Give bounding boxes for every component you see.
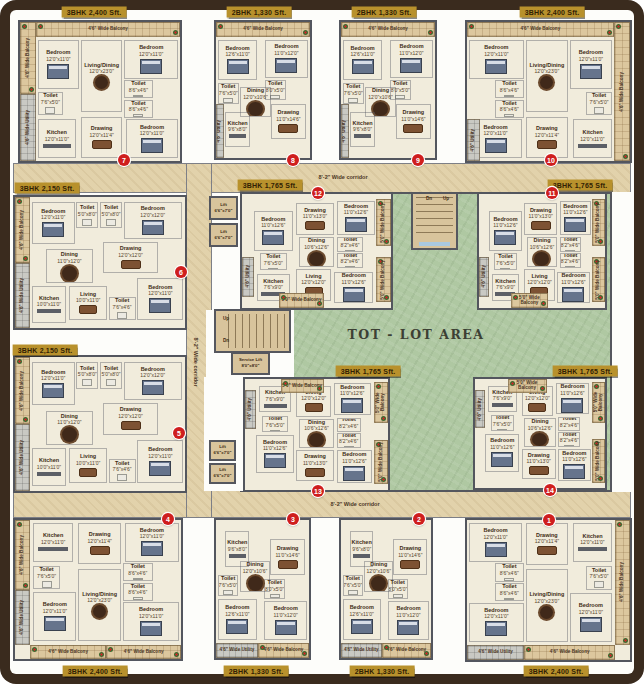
room-drawing: Drawing12'0"x11'4" [81, 117, 123, 159]
wc-furniture-icon [45, 107, 55, 114]
sofa-furniture-icon [305, 468, 325, 477]
strip-label: 5'0" Wide Balcony [282, 298, 322, 303]
counter-furniture-icon [264, 404, 287, 408]
balcony-strip: 4'6" Wide Balcony [258, 643, 309, 658]
room-dimensions: 12'0"x23'0" [87, 598, 112, 603]
lift: Lift6'6"x7'0" [209, 440, 236, 461]
room-dimensions: 11'0"x12'6" [560, 391, 584, 396]
room-dimensions: 12'0"x12'0" [527, 280, 552, 285]
wc-furniture-icon [344, 446, 354, 447]
room-bedroom: Bedroom11'0"x12'6" [558, 449, 591, 482]
bed-furniture-icon [580, 64, 602, 79]
unit-badge-13: 3BHK 1,765 Sft. [336, 366, 401, 377]
room-toilet: Toilet8'2"x4'6" [337, 253, 362, 268]
room-bedroom: Bedroom12'6"x11'0" [343, 40, 382, 81]
sofa-furniture-icon [305, 403, 323, 412]
strip-label: 4'6" Wide Utility [20, 600, 25, 635]
room-dimensions: 11'0"x12'6" [493, 223, 517, 228]
room-name: Toilet [498, 254, 512, 260]
room-dimensions: 11'0"x13'0" [529, 214, 553, 219]
room-name: Bedroom [342, 273, 366, 279]
room-dimensions: 7'6"x5'0" [264, 261, 283, 266]
room-kitchen: Kitchen9'6"x8'0" [350, 112, 374, 147]
counter-furniture-icon [229, 554, 246, 558]
balcony-strip: 4'6" Wide Balcony [15, 197, 30, 263]
balcony-strip: 5'0" Wide Balcony [508, 379, 547, 393]
room-dimensions: 11'0"x12'6" [562, 457, 586, 462]
room-dimensions: 7'6"x5'0" [493, 422, 512, 427]
room-drawing: Drawing11'0"x14'6" [271, 104, 307, 139]
lift-dims: 6'6"x7'0" [214, 236, 232, 241]
table-furniture-icon [93, 605, 106, 618]
room-dimensions: 12'0"x10'6" [243, 95, 268, 100]
utility-strip: 4'6" Utility [242, 257, 254, 297]
room-name: Toilet [80, 205, 94, 211]
bed-furniture-icon [42, 383, 64, 398]
room-name: Toilet [115, 298, 129, 304]
unit-number-2: 2 [413, 513, 425, 525]
room-dimensions: 7'6"x5'0" [41, 100, 60, 105]
room-toilet: Toilet8'2"x4'6" [558, 417, 580, 431]
table-furniture-icon [534, 252, 549, 266]
utility-strip: 4'6" Utility [467, 119, 480, 161]
wc-furniture-icon [504, 598, 514, 601]
room-toilet: Toilet8'2"x4'6" [337, 237, 362, 252]
stair-treads [416, 197, 453, 238]
room-dining: Dining11'0"x12'0" [46, 411, 94, 446]
bed-furniture-icon [485, 138, 507, 153]
room-dimensions: 8'2"x4'6" [560, 423, 579, 428]
room-dimensions: 12'0"x11'0" [148, 454, 172, 459]
room-dimensions: 11'0"x14'6" [401, 117, 425, 122]
central-stairs [411, 192, 458, 250]
unit-badge-6: 3BHK 2,150 Sft. [15, 183, 80, 194]
room-dimensions: 5'0"x8'0" [78, 212, 97, 217]
lift-label: Lift [220, 230, 227, 235]
room-dimensions: 12'0"x11'0" [580, 540, 604, 545]
utility-strip: 4'6" Utility [475, 390, 485, 428]
balcony-strip: 5'0" Wide Balcony [376, 257, 391, 303]
room-dimensions: 5'0"x8'0" [78, 372, 97, 377]
strip-label: 4'6" Utility [246, 265, 251, 287]
bed-furniture-icon [400, 58, 422, 73]
strip-label: 4'6" Wide Balcony [386, 648, 426, 653]
unit-number-13: 13 [312, 485, 324, 497]
sofa-furniture-icon [79, 468, 97, 477]
room-dimensions: 8'6"x4'6" [500, 107, 519, 112]
balcony-strip: 5'0" Wide Balcony [592, 382, 605, 422]
counter-furniture-icon [492, 403, 513, 407]
room-dimensions: 8'2"x4'6" [560, 438, 579, 443]
balcony-strip: 4'6" Wide Balcony [467, 22, 614, 37]
room-name: Bedroom [43, 602, 67, 608]
bed-furniture-icon [352, 59, 374, 74]
room-bedroom: Bedroom12'0"x11'0" [126, 119, 179, 158]
strip-label: 4'6" Utility [471, 129, 476, 151]
strip-label: 5'0" Wide Balcony [376, 383, 385, 422]
room-dimensions: 12'0"x11'0" [579, 610, 603, 615]
room-bedroom: Bedroom12'0"x11'0" [33, 592, 76, 641]
unit-number-8: 8 [287, 154, 299, 166]
stair-direction-label: Dn [426, 196, 432, 201]
service-lift: Service Lift8'0"x8'0" [231, 352, 270, 375]
room-dimensions: 9'6"x8'0" [228, 127, 247, 132]
room-name: Bedroom [148, 447, 172, 453]
room-dimensions: 11'0"x12'6" [490, 445, 514, 450]
unit-badge-2: 2BHK 1,330 Sft. [350, 666, 415, 677]
wc-furniture-icon [504, 95, 514, 98]
room-dimensions: 12'0"x11'0" [148, 291, 172, 296]
stair-landing [419, 242, 450, 246]
room-dimensions: 11'0"x14'6" [398, 553, 422, 558]
room-name: Bedroom [139, 45, 163, 51]
unit-13: Bedroom11'0"x12'6"Drawing11'0"x13'0"Bedr… [243, 377, 390, 492]
room-dimensions: 12'0"x11'0" [140, 131, 164, 136]
room-dining: Dining10'6"x12'6" [299, 237, 335, 267]
room-bedroom: Bedroom12'0"x11'0" [38, 40, 80, 89]
room-dimensions: 11'0"x12'6" [342, 280, 366, 285]
room-dimensions: 12'0"x12'0" [301, 280, 326, 285]
room-dimensions: 12'0"x12'0" [301, 396, 326, 401]
room-name: Toilet [43, 93, 57, 99]
stair-direction-label: Dn [223, 338, 229, 343]
room-dimensions: 11'0"x12'6" [344, 210, 368, 215]
room-bedroom: Bedroom12'0"x11'0" [124, 40, 178, 79]
balcony-strip: 4'6" Wide Balcony [524, 645, 615, 660]
tot-lot-area-label: TOT - LOT AREA [347, 327, 484, 342]
sofa-furniture-icon [79, 305, 97, 314]
wc-furniture-icon [223, 590, 233, 595]
sofa-furniture-icon [400, 560, 420, 569]
balcony-strip: 5'0" Wide Balcony [592, 199, 605, 247]
room-dimensions: 11'0"x12'6" [563, 210, 587, 215]
room-dimensions: 12'0"x23'0" [535, 599, 560, 604]
unit-badge-1: 3BHK 2,400 Sft. [524, 666, 589, 677]
utility-strip: 4'6" Wide Utility [15, 424, 30, 491]
room-dimensions: 9'6"x8'0" [353, 127, 372, 132]
unit-badge-10: 3BHK 2,400 Sft. [520, 7, 585, 18]
room-dimensions: 8'2"x4'6" [561, 259, 580, 264]
sofa-furniture-icon [305, 221, 325, 230]
bed-furniture-icon [494, 230, 516, 245]
lift-dims: 6'6"x7'0" [213, 474, 231, 479]
wc-furniture-icon [565, 250, 575, 252]
room-dimensions: 11'0"x12'6" [340, 391, 364, 396]
utility-strip: 4'6" Utility [245, 390, 256, 429]
sofa-furniture-icon [537, 140, 557, 149]
room-dimensions: 8'6"x4'6" [129, 107, 148, 112]
room-name: Bedroom [579, 603, 603, 609]
wc-furniture-icon [133, 597, 143, 600]
balcony-strip: 4'6" Wide Balcony [216, 22, 310, 37]
unit-number-4: 4 [162, 513, 174, 525]
room-living-dining: Living/Dining12'0"x23'0" [526, 569, 568, 642]
strip-label: 4'6" Wide Balcony [620, 562, 625, 602]
room-dimensions: 12'0"x11'0" [140, 534, 164, 539]
unit-2: Bedroom12'6"x11'0"Bedroom11'0"x12'0"Toil… [339, 518, 433, 660]
room-dimensions: 7'6"x9'0" [264, 285, 283, 290]
counter-furniture-icon [37, 309, 62, 313]
room-bedroom: Bedroom11'0"x12'0" [264, 601, 307, 640]
bed-furniture-icon [341, 398, 363, 413]
bed-furniture-icon [485, 542, 507, 557]
wc-furniture-icon [345, 266, 355, 268]
balcony-strip: 5'0" Wide Balcony [592, 439, 605, 483]
wc-furniture-icon [500, 268, 510, 270]
strip-label: 4'6" Utility [248, 398, 253, 420]
room-toilet: Toilet7'6"x4'6" [109, 297, 136, 321]
room-drawing: Drawing12'0"x11'4" [526, 523, 568, 565]
sofa-furniture-icon [403, 124, 423, 133]
wc-furniture-icon [348, 98, 358, 103]
room-bedroom: Bedroom11'0"x12'0" [388, 601, 429, 640]
balcony-strip: 4'6" Wide Balcony [615, 520, 630, 645]
room-dimensions: 12'0"x11'0" [580, 137, 604, 142]
strip-label: 5'0" Wide Balcony [594, 383, 603, 421]
room-toilet: Toilet8'6"x4'6" [124, 100, 153, 118]
bed-furniture-icon [351, 619, 373, 634]
room-dimensions: 8'2"x4'6" [339, 424, 358, 429]
room-living-dining: Living/Dining12'0"x23'0" [526, 40, 568, 112]
counter-furniture-icon [229, 134, 247, 138]
room-toilet: Toilet8'6"x4'6" [495, 100, 524, 118]
balcony-strip: 5'0" Wide Balcony [592, 257, 605, 303]
strip-label: 4'6" Utility [342, 120, 347, 142]
lift: Lift6'6"x7'0" [209, 196, 238, 220]
room-bedroom: Bedroom11'0"x12'6" [334, 272, 373, 304]
room-name: Living/Dining [529, 592, 564, 598]
room-bedroom: Bedroom11'0"x12'6" [334, 383, 371, 414]
bed-furniture-icon [397, 620, 419, 635]
wc-furniture-icon [270, 95, 280, 99]
sofa-furniture-icon [90, 546, 110, 555]
room-name: Drawing [399, 546, 421, 552]
room-kitchen: Kitchen12'0"x11'0" [573, 119, 612, 158]
table-furniture-icon [532, 433, 547, 446]
room-dimensions: 12'0"x11'0" [43, 609, 67, 614]
room-name: Toilet [221, 576, 235, 582]
room-dimensions: 8'6"x4'6" [500, 591, 519, 596]
counter-furniture-icon [37, 472, 62, 476]
room-name: Dining [531, 419, 548, 425]
unit-number-9: 9 [412, 154, 424, 166]
room-dimensions: 7'6"x9'0" [496, 285, 515, 290]
unit-badge-9: 2BHK 1,330 Sft. [352, 7, 417, 18]
room-dimensions: 12'0"x11'0" [483, 535, 507, 540]
bed-furniture-icon [140, 621, 162, 636]
room-dimensions: 8'6"x4'6" [128, 571, 147, 576]
balcony-strip: 4'6" Wide Balcony [30, 645, 106, 659]
bed-furniture-icon [275, 58, 297, 73]
room-name: Toilet [346, 576, 360, 582]
room-dimensions: 7'6"x5'0" [589, 574, 608, 579]
room-bedroom: Bedroom11'0"x12'6" [489, 211, 522, 251]
room-kitchen: Kitchen10'0"x11'0" [32, 286, 66, 323]
strip-label: 4'6" Wide Balcony [520, 27, 560, 32]
room-drawing: Drawing12'0"x12'0" [103, 403, 157, 435]
room-bedroom: Bedroom12'0"x11'0" [570, 40, 612, 89]
strip-label: 4'6" Wide Utility [20, 440, 25, 475]
bed-furniture-icon [141, 138, 163, 153]
bed-furniture-icon [141, 541, 163, 556]
room-dimensions: 12'0"x10'6" [368, 95, 393, 100]
room-dimensions: 8'6"x4'6" [128, 590, 147, 595]
utility-strip: 4'6" Wide Utility [341, 643, 382, 658]
bed-furniture-icon [562, 287, 584, 302]
room-kitchen: Kitchen12'0"x11'0" [38, 119, 76, 158]
unit-10: Bedroom12'0"x11'0"Living/Dining12'0"x23'… [465, 20, 632, 163]
room-dimensions: 11'0"x12'6" [261, 223, 285, 228]
lift-dims: 6'6"x7'0" [214, 209, 232, 214]
strip-label: 4'6" Wide Balcony [124, 650, 164, 655]
room-dimensions: 12'0"x12'0" [118, 414, 143, 419]
room-dimensions: 8'6"x4'6" [129, 88, 148, 93]
room-name: Kitchen [582, 130, 602, 136]
room-kitchen: Kitchen12'0"x11'0" [33, 523, 73, 562]
balcony-strip: 4'6" Wide Balcony [20, 22, 36, 94]
room-dimensions: 10'0"x11'0" [76, 298, 100, 303]
room-toilet: Toilet8'2"x4'6" [560, 253, 581, 268]
utility-strip: 4'6" Wide Utility [467, 645, 524, 660]
room-dimensions: 11'0"x13'0" [303, 461, 327, 466]
room-name: Toilet [346, 84, 360, 90]
room-dimensions: 12'0"x11'4" [88, 539, 112, 544]
room-dimensions: 12'0"x12'0" [118, 253, 143, 258]
room-name: Bedroom [483, 528, 507, 534]
lift-label: Lift [220, 203, 227, 208]
bed-furniture-icon [563, 464, 585, 479]
unit-9: Bedroom12'6"x11'0"Bedroom11'0"x12'0"Toil… [339, 20, 437, 160]
sofa-furniture-icon [529, 466, 549, 475]
room-dimensions: 10'0"x11'0" [37, 465, 61, 470]
room-toilet: Toilet8'6"x4'6" [495, 583, 524, 601]
room-dimensions: 11'0"x13'0" [527, 459, 551, 464]
floor-plan-page: TOT - LOT AREA DnUpUpDnLift6'6"x7'0"Lift… [10, 10, 634, 674]
bed-furniture-icon [275, 620, 297, 635]
counter-furniture-icon [578, 547, 607, 551]
room-toilet: Toilet7'6"x5'0" [218, 575, 238, 596]
utility-strip: 4'6" Utility [216, 104, 224, 158]
bed-furniture-icon [343, 466, 365, 481]
utility-strip: 4'6" Wide Utility [15, 263, 30, 329]
room-toilet: Toilet7'6"x5'0" [260, 253, 287, 270]
table-furniture-icon [62, 427, 77, 442]
bed-furniture-icon [485, 621, 507, 636]
unit-4: Bedroom12'0"x11'0"Living/Dining12'0"x23'… [13, 518, 183, 661]
room-bedroom: Bedroom12'0"x11'0" [469, 603, 524, 642]
room-dimensions: 5'0"x8'0" [102, 372, 121, 377]
sofa-furniture-icon [278, 560, 298, 569]
room-dimensions: 10'6"x12'6" [304, 245, 329, 250]
room-dimensions: 12'0"x10'6" [366, 569, 391, 574]
room-dimensions: 11'0"x13'0" [303, 214, 327, 219]
bed-furniture-icon [564, 217, 586, 232]
bed-furniture-icon [44, 616, 66, 631]
room-toilet: Toilet7'6"x4'6" [109, 459, 136, 483]
room-dimensions: 12'0"x23'0" [89, 69, 114, 74]
room-dimensions: 11'0"x12'6" [263, 446, 287, 451]
room-name: Toilet [104, 205, 118, 211]
room-dimensions: 7'6"x9'0" [493, 396, 512, 401]
room-dimensions: 7'6"x5'0" [37, 574, 56, 579]
wc-furniture-icon [106, 219, 116, 226]
wc-furniture-icon [133, 95, 143, 98]
room-drawing: Drawing12'0"x11'4" [78, 523, 121, 565]
unit-badge-11: 3BHK 1,765 Sft. [548, 180, 613, 191]
table-furniture-icon [248, 576, 263, 591]
room-dining: Dining10'6"x12'6" [527, 237, 557, 267]
table-furniture-icon [95, 76, 108, 89]
room-bedroom: Bedroom11'0"x12'6" [256, 435, 293, 474]
bed-furniture-icon [140, 59, 162, 74]
room-bedroom: Bedroom12'6"x11'0" [343, 599, 381, 640]
bed-furniture-icon [264, 453, 286, 468]
room-name: Drawing [403, 110, 425, 116]
room-dimensions: 12'0"x11'4" [535, 539, 559, 544]
room-bedroom: Bedroom11'0"x12'0" [265, 40, 308, 78]
strip-label: 4'6" Wide Balcony [243, 27, 283, 32]
room-name: Toilet [502, 584, 516, 590]
bed-furniture-icon [226, 619, 248, 634]
room-bedroom: Bedroom12'6"x11'0" [218, 40, 257, 81]
room-bedroom: Bedroom12'6"x11'0" [218, 599, 257, 640]
room-kitchen: Kitchen9'6"x8'0" [350, 531, 373, 567]
unit-1: Bedroom12'0"x11'0"Living/Dining12'0"x23'… [465, 518, 632, 662]
room-toilet: Toilet5'0"x8'0" [100, 202, 122, 228]
room-name: Dining [372, 88, 389, 94]
lift: Lift6'6"x7'0" [209, 223, 238, 247]
room-dimensions: 12'0"x11'4" [535, 133, 559, 138]
table-furniture-icon [248, 102, 263, 116]
wc-furniture-icon [344, 431, 354, 432]
balcony-strip: 5'0" Wide Balcony [281, 379, 324, 393]
balcony-strip: 4'6" Wide Balcony [614, 22, 630, 161]
room-bedroom: Bedroom11'0"x12'6" [556, 383, 590, 414]
room-dimensions: 12'0"x11'0" [45, 137, 69, 142]
bed-furniture-icon [343, 287, 365, 302]
room-bedroom: Bedroom12'0"x11'0" [469, 40, 524, 79]
room-dimensions: 11'0"x12'0" [57, 259, 81, 264]
room-toilet: Toilet7'6"x5'0" [343, 575, 363, 596]
wc-furniture-icon [270, 430, 280, 432]
room-living-dining: Living/Dining12'0"x23'0" [81, 40, 123, 112]
room-dimensions: 12'0"x11'0" [46, 57, 70, 62]
table-furniture-icon [371, 576, 386, 591]
wc-furniture-icon [223, 98, 233, 103]
wc-furniture-icon [42, 581, 52, 588]
room-name: Dining [533, 238, 550, 244]
strip-label: 4'6" Wide Balcony [20, 371, 25, 411]
bed-furniture-icon [227, 59, 249, 74]
table-furniture-icon [540, 606, 553, 619]
room-dimensions: 7'6"x5'0" [265, 423, 284, 428]
corridor-width-label: 8'-2" Wide corridor [318, 174, 367, 180]
room-name: Bedroom [139, 607, 163, 613]
room-name: Drawing [120, 246, 142, 252]
room-kitchen: Kitchen12'0"x11'0" [573, 523, 612, 562]
background-patch [612, 192, 632, 492]
unit-number-14: 14 [544, 484, 556, 496]
room-dimensions: 10'6"x12'6" [304, 426, 329, 431]
wc-furniture-icon [504, 578, 514, 581]
table-furniture-icon [309, 433, 324, 446]
room-dimensions: 7'6"x5'0" [496, 261, 515, 266]
room-name: Bedroom [141, 206, 165, 212]
bed-furniture-icon [491, 452, 513, 467]
unit-badge-4: 3BHK 2,400 Sft. [63, 666, 128, 677]
room-dining: Dining10'6"x12'6" [299, 419, 333, 448]
sofa-furniture-icon [121, 421, 141, 430]
